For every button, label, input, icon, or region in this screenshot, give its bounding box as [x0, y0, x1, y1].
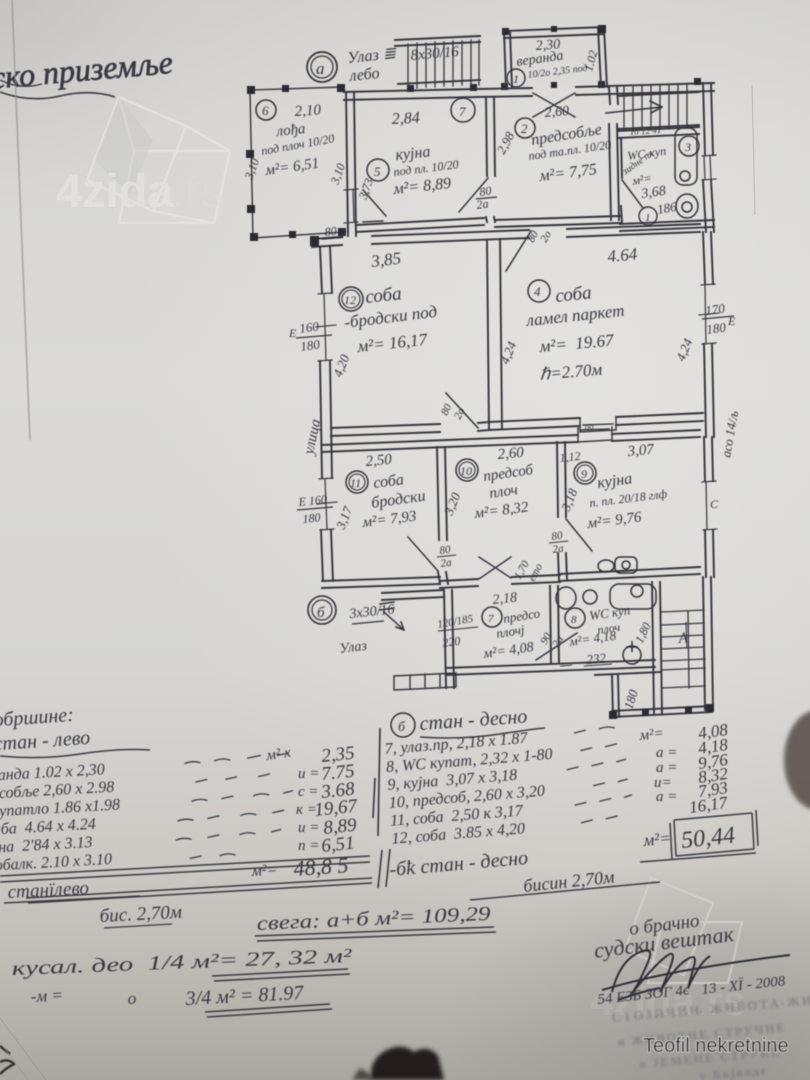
svg-text:1: 1 — [645, 212, 651, 224]
svg-text:180: 180 — [705, 319, 727, 337]
svg-text:3,07: 3,07 — [626, 442, 656, 460]
svg-text:8: 8 — [571, 614, 577, 626]
svg-text:160: 160 — [298, 318, 320, 336]
svg-text:о: о — [127, 989, 136, 1008]
svg-text:соба: соба — [554, 282, 592, 307]
svg-text:2,50: 2,50 — [365, 452, 393, 470]
svg-text:а =: а = — [656, 745, 677, 761]
svg-text:9: 9 — [581, 467, 587, 481]
svg-text:с =: с = — [298, 784, 319, 800]
svg-text:3,85: 3,85 — [369, 248, 402, 271]
svg-text:1: 1 — [513, 72, 519, 86]
svg-text:48,8 5: 48,8 5 — [293, 852, 350, 881]
svg-text:2,10: 2,10 — [294, 102, 322, 120]
svg-text:80: 80 — [439, 543, 452, 556]
svg-text:2,60: 2,60 — [497, 445, 525, 463]
svg-text:а =: а = — [656, 760, 677, 776]
svg-text:5: 5 — [374, 164, 381, 179]
svg-text:соба: соба — [364, 283, 402, 308]
svg-text:180: 180 — [299, 336, 321, 354]
svg-text:7: 7 — [488, 613, 494, 625]
svg-text:а =: а = — [656, 789, 677, 805]
svg-text:м²=: м²= — [638, 726, 665, 745]
svg-text:170: 170 — [704, 300, 726, 318]
svg-text:б: б — [398, 720, 406, 735]
svg-text:4: 4 — [534, 284, 541, 299]
svg-text:10: 10 — [460, 464, 472, 478]
svg-text:Teofil nekretnine: Teofil nekretnine — [643, 1035, 789, 1057]
svg-text:б: б — [317, 605, 325, 621]
svg-text:и =: и = — [298, 820, 319, 836]
svg-text:2: 2 — [521, 121, 528, 136]
svg-text:2а: 2а — [552, 542, 565, 555]
svg-text:1,12: 1,12 — [559, 449, 581, 465]
svg-text:11: 11 — [350, 476, 361, 490]
svg-text:оо: оо — [584, 421, 594, 432]
svg-text:м²=: м²= — [641, 828, 671, 850]
svg-text:2а: 2а — [440, 556, 453, 569]
svg-text:12: 12 — [344, 293, 356, 307]
svg-text:и =: и = — [298, 766, 319, 782]
svg-text:-м =: -м = — [30, 985, 63, 1006]
svg-text:.rs: .rs — [172, 164, 224, 217]
svg-text:220: 220 — [441, 634, 461, 650]
svg-text:80: 80 — [551, 529, 564, 542]
svg-text:6: 6 — [262, 103, 269, 118]
svg-text:4zida: 4zida — [56, 164, 174, 217]
svg-text:С: С — [710, 497, 719, 511]
svg-text:м²=: м²= — [250, 861, 278, 880]
svg-text:Е: Е — [288, 326, 297, 340]
svg-text:80: 80 — [324, 224, 337, 239]
svg-text:а: а — [316, 59, 325, 78]
svg-text:7: 7 — [459, 104, 466, 119]
svg-text:4.64: 4.64 — [607, 244, 639, 266]
svg-text:2,18: 2,18 — [492, 590, 518, 607]
svg-text:бис. 2,70м: бис. 2,70м — [99, 902, 182, 927]
svg-text:п =: п = — [298, 838, 319, 854]
svg-text:2,84: 2,84 — [391, 110, 420, 128]
svg-text:2,60: 2,60 — [544, 104, 570, 121]
svg-text:3: 3 — [684, 140, 691, 154]
svg-text:180: 180 — [302, 510, 321, 526]
svg-text:лебо: лебо — [348, 65, 381, 85]
